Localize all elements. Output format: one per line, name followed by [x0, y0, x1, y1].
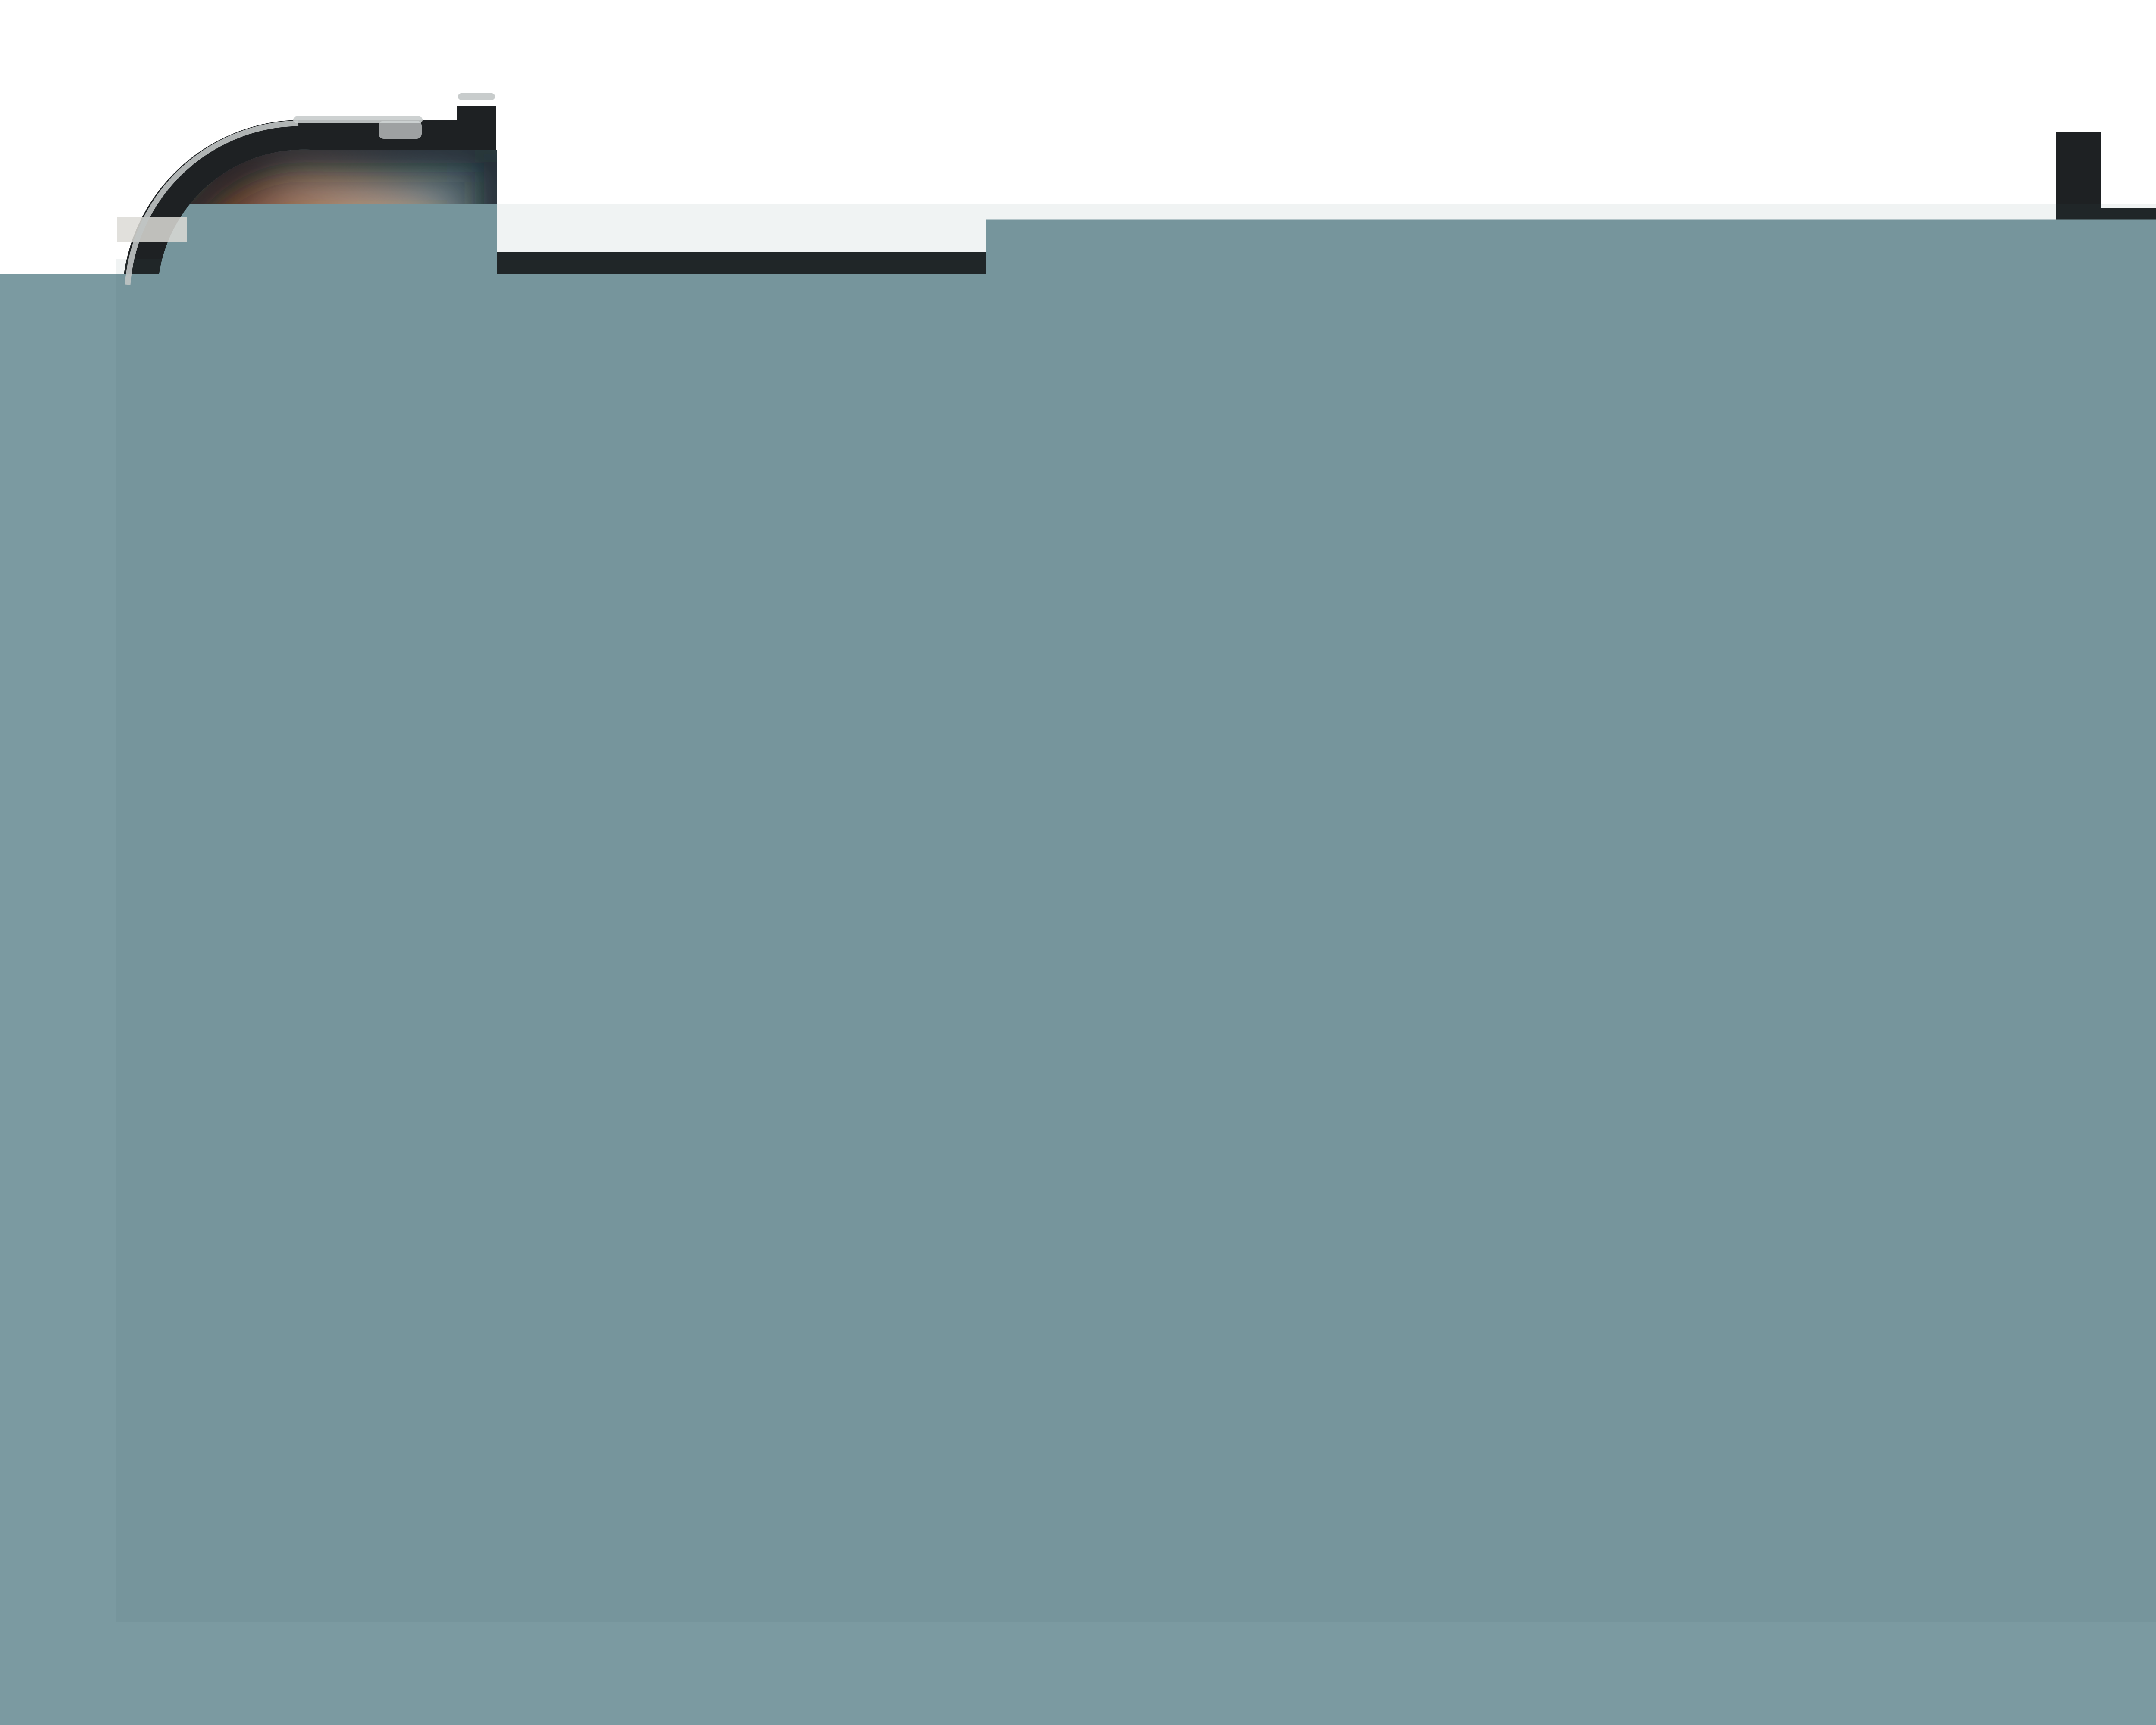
- svg-text:Date code:7J16B0: Date code:7J16B0: [865, 1328, 1029, 1354]
- svg-text:#5: #5: [1007, 957, 1036, 985]
- svg-text:AHL50_LOC_LOW: AHL50_LOC_LOW: [554, 1000, 727, 1029]
- svg-text:SPS-813939-001: SPS-813939-001: [865, 1260, 1044, 1289]
- svg-text:SHENG MEI: SHENG MEI: [939, 991, 1074, 1019]
- svg-text:P7330A6AN0510F84: P7330A6AN0510F84: [1115, 1339, 1201, 1349]
- svg-text:5-162#: 5-162#: [840, 1194, 852, 1229]
- svg-text:16.10.22 B: 16.10.22 B: [824, 1192, 837, 1246]
- svg-text:B: B: [1171, 904, 1202, 957]
- svg-text:AP1EM000600: AP1EM000600: [1116, 1323, 1197, 1336]
- svg-text:FA1EM000B10/AP1EM000510: FA1EM000B10/AP1EM000510: [558, 1114, 843, 1142]
- svg-text:FA1EM000G10/AP1EM000610: FA1EM000G10/AP1EM000610: [915, 1111, 1231, 1139]
- svg-text:$: $: [2140, 374, 2151, 395]
- svg-text:S: S: [1232, 904, 1264, 957]
- svg-text:P/N:FA1EM000B00/AP1EM000500: P/N:FA1EM000B00/AP1EM000500: [515, 1058, 867, 1086]
